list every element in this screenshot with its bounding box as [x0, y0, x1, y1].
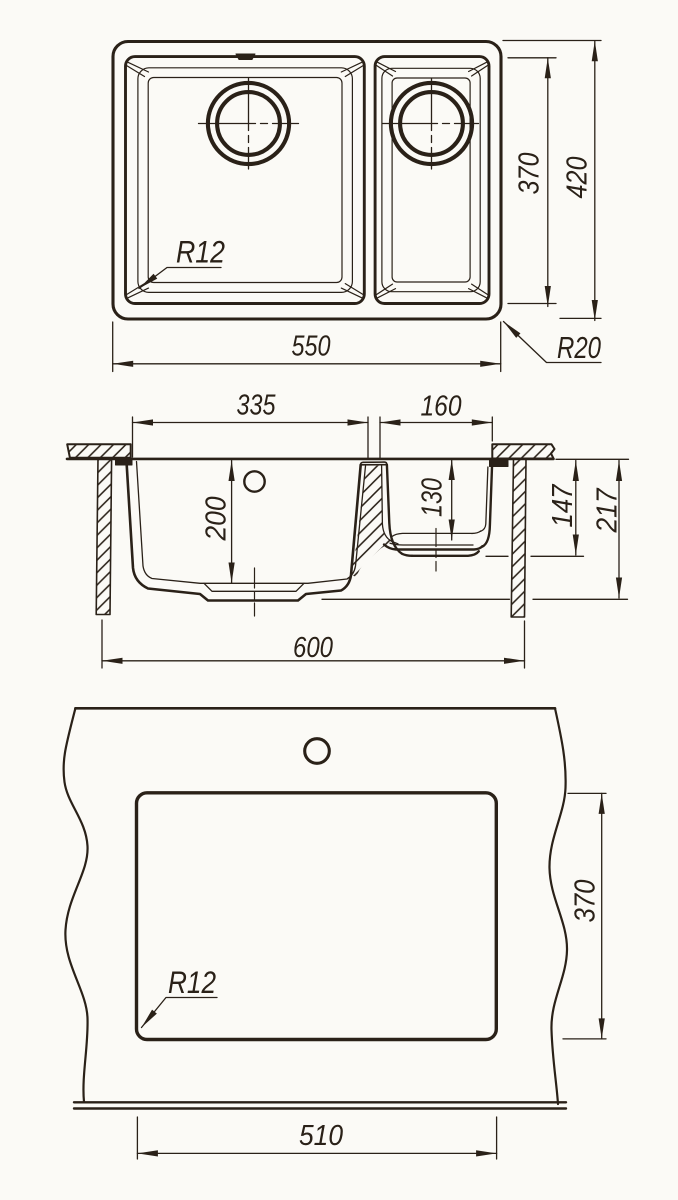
svg-text:130: 130	[417, 478, 449, 517]
svg-text:R12: R12	[176, 234, 225, 270]
svg-text:370: 370	[514, 152, 546, 194]
svg-text:R20: R20	[557, 330, 601, 365]
svg-text:510: 510	[299, 1120, 343, 1152]
svg-text:420: 420	[562, 156, 594, 198]
svg-text:217: 217	[592, 487, 624, 533]
svg-text:R12: R12	[168, 964, 216, 1000]
svg-text:200: 200	[201, 496, 233, 541]
svg-text:370: 370	[570, 879, 602, 922]
svg-text:600: 600	[293, 632, 333, 664]
svg-text:160: 160	[421, 391, 462, 423]
svg-text:147: 147	[547, 483, 579, 527]
svg-text:335: 335	[237, 390, 276, 422]
svg-text:550: 550	[292, 331, 331, 363]
